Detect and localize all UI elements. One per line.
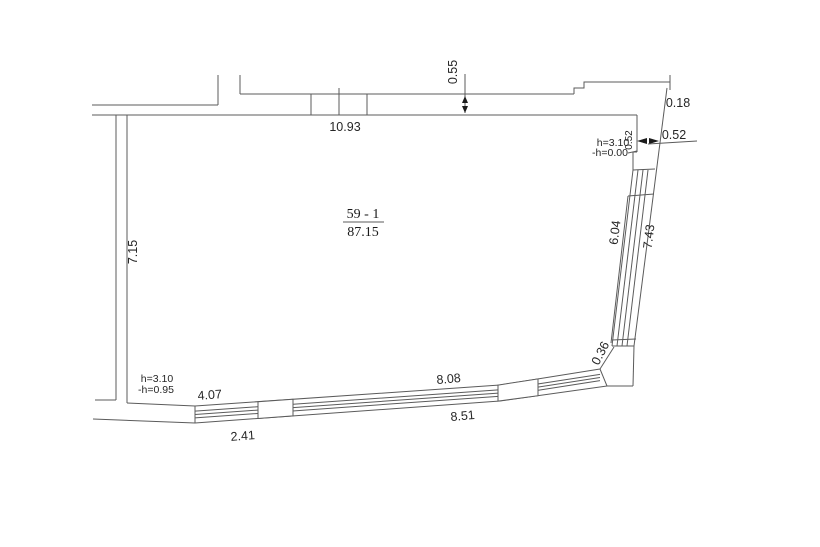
left-wall (95, 115, 127, 403)
dim-wall-thickness: 0.55 (446, 60, 460, 84)
dim-corner: 0.36 (589, 339, 613, 367)
dimension-marks (343, 74, 697, 222)
bottom-wall-pier-left (258, 399, 293, 418)
right-wall-window (611, 88, 667, 346)
adjacent-walls (92, 75, 670, 105)
dim-pier: 0.52 (662, 128, 686, 142)
dim-bottom-upper: 8.08 (436, 371, 462, 387)
dim-top-width: 10.93 (329, 120, 360, 134)
room-number: 59 - 1 (347, 207, 380, 222)
annot-level-bottom-left: -h=0.95 (138, 384, 174, 396)
dim-top-right-offset: 0.18 (666, 96, 690, 110)
arrow-up (462, 96, 468, 103)
bottom-wall-pier-right (498, 379, 538, 401)
top-wall (92, 88, 637, 115)
dim-bottom-left-upper: 4.07 (197, 387, 222, 403)
room-area: 87.15 (347, 225, 379, 240)
dim-right-wall: 7.43 (641, 224, 658, 250)
bottom-wall-window (93, 369, 633, 423)
floor-plan-canvas: 10.93 0.55 0.18 0.52 0.52 h=3.10 -h=0.00… (0, 0, 820, 547)
dim-right-window: 6.04 (607, 220, 624, 246)
dim-bottom-lower: 8.51 (450, 408, 476, 424)
dim-left-wall: 7.15 (126, 240, 140, 264)
annot-level-top-right: -h=0.00 (592, 147, 628, 159)
arrow-left (637, 138, 647, 144)
arrow-down (462, 106, 468, 113)
floor-plan: 10.93 0.55 0.18 0.52 0.52 h=3.10 -h=0.00… (0, 0, 820, 547)
dim-bottom-left-lower: 2.41 (230, 428, 255, 444)
